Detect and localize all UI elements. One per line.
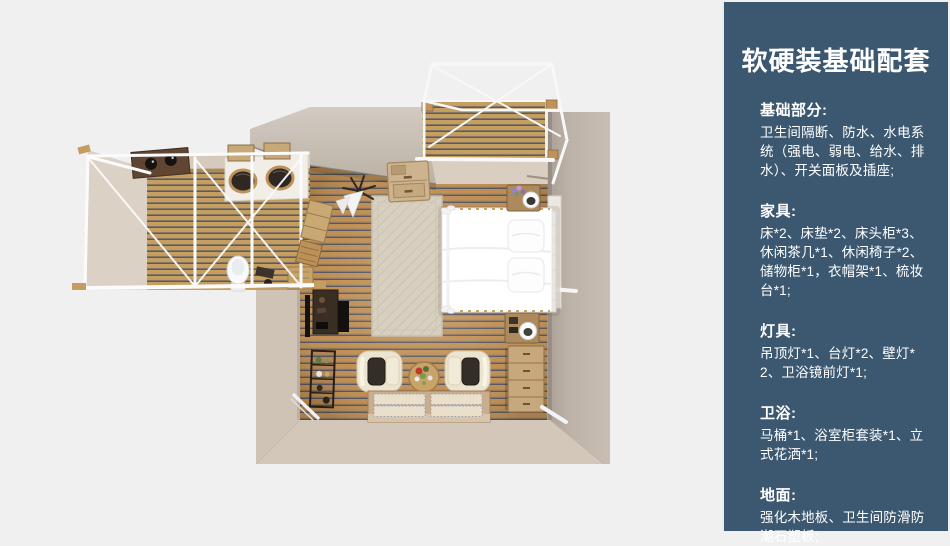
nightstand-with-lamp-top [507, 185, 540, 211]
section-body: 马桶*1、浴室柜套装*1、立式花洒*1; [760, 426, 936, 464]
dresser [387, 161, 430, 202]
section-furniture: 家具: 床*2、床垫*2、床头柜*3、休闲茶几*1、休闲椅子*2、储物柜*1，衣… [760, 201, 936, 300]
slide: 软硬装基础配套 基础部分: 卫生间隔断、防水、水电系统（强电、弱电、给水、排水）… [0, 0, 950, 534]
section-bathroom: 卫浴: 马桶*1、浴室柜套装*1、立式花洒*1; [760, 403, 936, 464]
section-heading: 灯具: [760, 321, 936, 343]
section-heading: 卫浴: [760, 403, 936, 425]
floorplan-render [0, 0, 722, 534]
platform-bed [368, 391, 490, 422]
section-heading: 地面: [760, 485, 936, 507]
bathroom-wing [72, 143, 326, 291]
chest-of-drawers [505, 346, 544, 412]
section-heading: 家具: [760, 201, 936, 223]
lounge-chair-right [445, 351, 490, 392]
section-heading: 基础部分: [760, 100, 936, 122]
section-body: 吊顶灯*1、台灯*2、壁灯*2、卫浴镜前灯*1; [760, 344, 936, 382]
panel-title: 软硬装基础配套 [724, 44, 948, 78]
section-basics: 基础部分: 卫生间隔断、防水、水电系统（强电、弱电、给水、排水）、开关面板及插座… [760, 100, 936, 180]
section-body: 强化木地板、卫生间防滑防潮石塑板; [760, 508, 936, 546]
section-flooring: 地面: 强化木地板、卫生间防滑防潮石塑板; [760, 485, 936, 546]
section-body: 床*2、床垫*2、床头柜*3、休闲茶几*1、休闲椅子*2、储物柜*1，衣帽架*1… [760, 224, 936, 300]
ladder-shelf [310, 351, 335, 408]
bed [438, 206, 560, 317]
section-body: 卫生间隔断、防水、水电系统（强电、弱电、给水、排水）、开关面板及插座; [760, 123, 936, 180]
nightstand-with-lamp-bottom [505, 313, 539, 343]
spec-panel: 软硬装基础配套 基础部分: 卫生间隔断、防水、水电系统（强电、弱电、给水、排水）… [722, 2, 948, 531]
section-lighting: 灯具: 吊顶灯*1、台灯*2、壁灯*2、卫浴镜前灯*1; [760, 321, 936, 382]
area-rug [372, 196, 442, 336]
lounge-chair-left [357, 351, 402, 392]
corner-counter [131, 148, 190, 179]
tea-table [409, 362, 439, 392]
